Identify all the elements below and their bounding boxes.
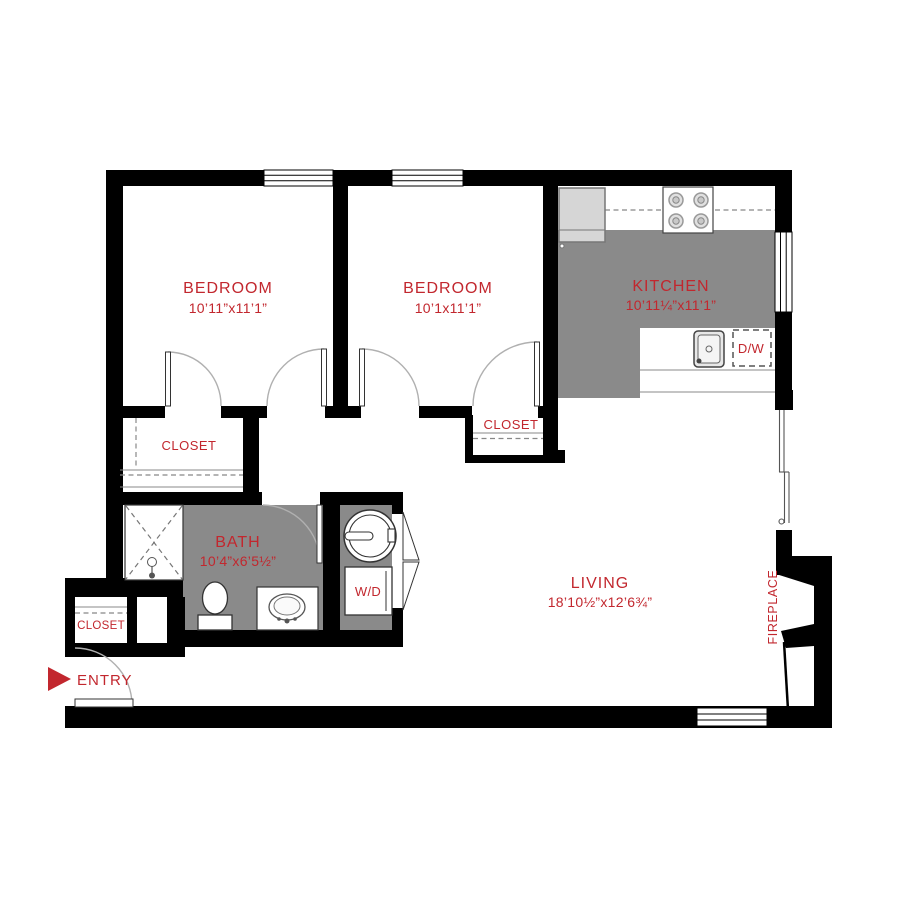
- closet2-door: [473, 342, 540, 406]
- wall-segment: [419, 406, 472, 418]
- living-window: [697, 708, 767, 726]
- closet1-label: CLOSET: [161, 438, 216, 453]
- wall-kitchen-left: [543, 186, 558, 450]
- living-window-wall: [779, 410, 789, 524]
- bedroom2-dims: 10’1x11’1”: [415, 300, 482, 316]
- wall-bedroom-divider: [333, 186, 348, 418]
- bifold-doors: [403, 512, 419, 610]
- wall-entry-left: [65, 578, 75, 648]
- fireplace-label: FIREPLACE: [766, 570, 780, 645]
- floor-plan-svg: BEDROOM 10’11”x11’1” BEDROOM 10’1x11’1” …: [0, 0, 900, 900]
- closet2-rod-shelf: [473, 433, 543, 439]
- living-label: LIVING: [571, 575, 629, 592]
- fireplace-structure: [776, 530, 832, 722]
- wall-segment: [106, 406, 165, 418]
- floor-plan: BEDROOM 10’11”x11’1” BEDROOM 10’1x11’1” …: [0, 0, 900, 900]
- kitchen-floor: [558, 230, 775, 398]
- washer-dryer-label: W/D: [355, 584, 381, 599]
- bedroom1-window: [264, 170, 333, 186]
- wall-segment: [348, 406, 361, 418]
- refrigerator: [559, 188, 605, 248]
- wall-segment: [325, 406, 348, 418]
- shower: [125, 505, 183, 580]
- bath-wall-top-right: [320, 492, 403, 505]
- bedroom1-dims: 10’11”x11’1”: [189, 300, 268, 316]
- bath-wall-top-left: [106, 492, 262, 505]
- closet2-label: CLOSET: [483, 417, 538, 432]
- bath-laundry-divider: [323, 505, 340, 632]
- fireplace-mid-band: [781, 624, 814, 648]
- fireplace-edge-line: [784, 642, 788, 710]
- stove: [663, 187, 713, 233]
- laundry-stub-top: [392, 492, 403, 514]
- closet1-door: [166, 352, 222, 406]
- wall-entry-jog: [65, 578, 183, 597]
- entry-closet-divider: [127, 597, 137, 643]
- wall-left: [106, 170, 123, 597]
- washer: [344, 510, 396, 562]
- living-dims: 18’10½”x12’6¾”: [548, 594, 653, 610]
- dishwasher-label: D/W: [738, 341, 765, 356]
- kitchen-window: [775, 232, 792, 312]
- kitchen-label: KITCHEN: [632, 278, 709, 295]
- entry-closet-label: CLOSET: [77, 620, 125, 632]
- entry-closet-bottom: [65, 643, 185, 657]
- kitchen-dims: 10’11¼”x11’1”: [626, 297, 717, 313]
- bedroom1-label: BEDROOM: [183, 280, 273, 297]
- wall-kitchen-corner-stub: [775, 390, 793, 410]
- bath-wall-bottom: [172, 630, 403, 647]
- entry-label: ENTRY: [77, 672, 133, 689]
- entry-closet-rod-shelf: [75, 607, 127, 613]
- vanity-sink: [257, 587, 318, 630]
- bedroom2-label: BEDROOM: [403, 280, 493, 297]
- closet2-wall-bottom: [465, 455, 558, 463]
- bedroom2-window: [392, 170, 463, 186]
- entry-arrow-icon: [48, 667, 71, 691]
- laundry-stub-bottom: [392, 608, 403, 647]
- bedroom2-door: [360, 349, 420, 406]
- bedroom1-door: [267, 349, 327, 406]
- bath-dims: 10’4”x6’5½”: [200, 553, 276, 569]
- kitchen-sink: [694, 331, 724, 367]
- closet1-wall-right: [243, 406, 259, 505]
- fireplace-column: [814, 556, 832, 722]
- wall-right-upper: [775, 170, 792, 232]
- bath-label: BATH: [215, 534, 260, 551]
